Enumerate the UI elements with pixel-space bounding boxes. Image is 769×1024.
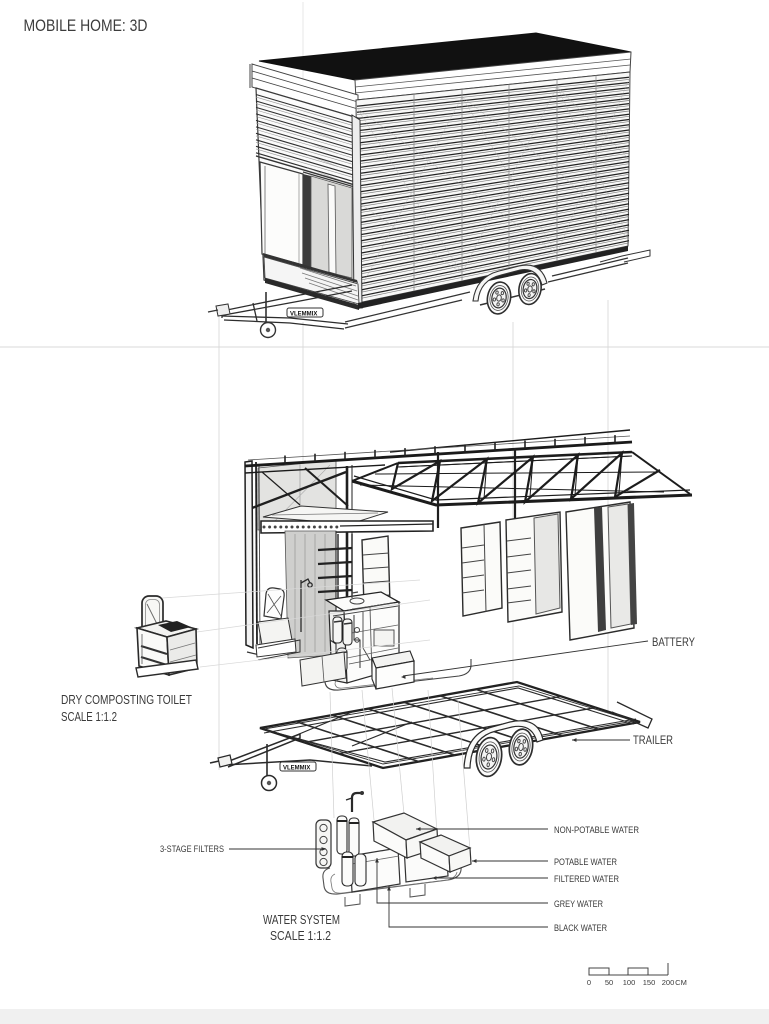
svg-text:SCALE 1:1.2: SCALE 1:1.2 xyxy=(61,710,117,724)
svg-text:3-STAGE FILTERS: 3-STAGE FILTERS xyxy=(160,844,224,855)
svg-text:0: 0 xyxy=(587,978,591,987)
svg-text:SCALE 1:1.2: SCALE 1:1.2 xyxy=(270,929,331,943)
svg-text:50: 50 xyxy=(605,978,613,987)
svg-text:GREY WATER: GREY WATER xyxy=(554,899,603,910)
svg-text:BATTERY: BATTERY xyxy=(652,635,695,649)
svg-text:VLEMMIX: VLEMMIX xyxy=(290,312,317,318)
svg-text:200: 200 xyxy=(662,978,675,987)
svg-text:CM: CM xyxy=(675,978,687,987)
svg-text:POTABLE WATER: POTABLE WATER xyxy=(554,857,617,868)
svg-text:NON-POTABLE WATER: NON-POTABLE WATER xyxy=(554,825,639,836)
svg-text:150: 150 xyxy=(643,978,656,987)
svg-text:BLACK WATER: BLACK WATER xyxy=(554,923,607,934)
svg-text:WATER SYSTEM: WATER SYSTEM xyxy=(263,913,340,927)
svg-text:MOBILE HOME: 3D: MOBILE HOME: 3D xyxy=(24,17,148,35)
svg-text:DRY COMPOSTING TOILET: DRY COMPOSTING TOILET xyxy=(61,693,192,707)
svg-text:TRAILER: TRAILER xyxy=(633,733,673,747)
svg-text:FILTERED WATER: FILTERED WATER xyxy=(554,874,619,885)
svg-text:VLEMMIX: VLEMMIX xyxy=(283,766,310,772)
svg-text:100: 100 xyxy=(623,978,636,987)
